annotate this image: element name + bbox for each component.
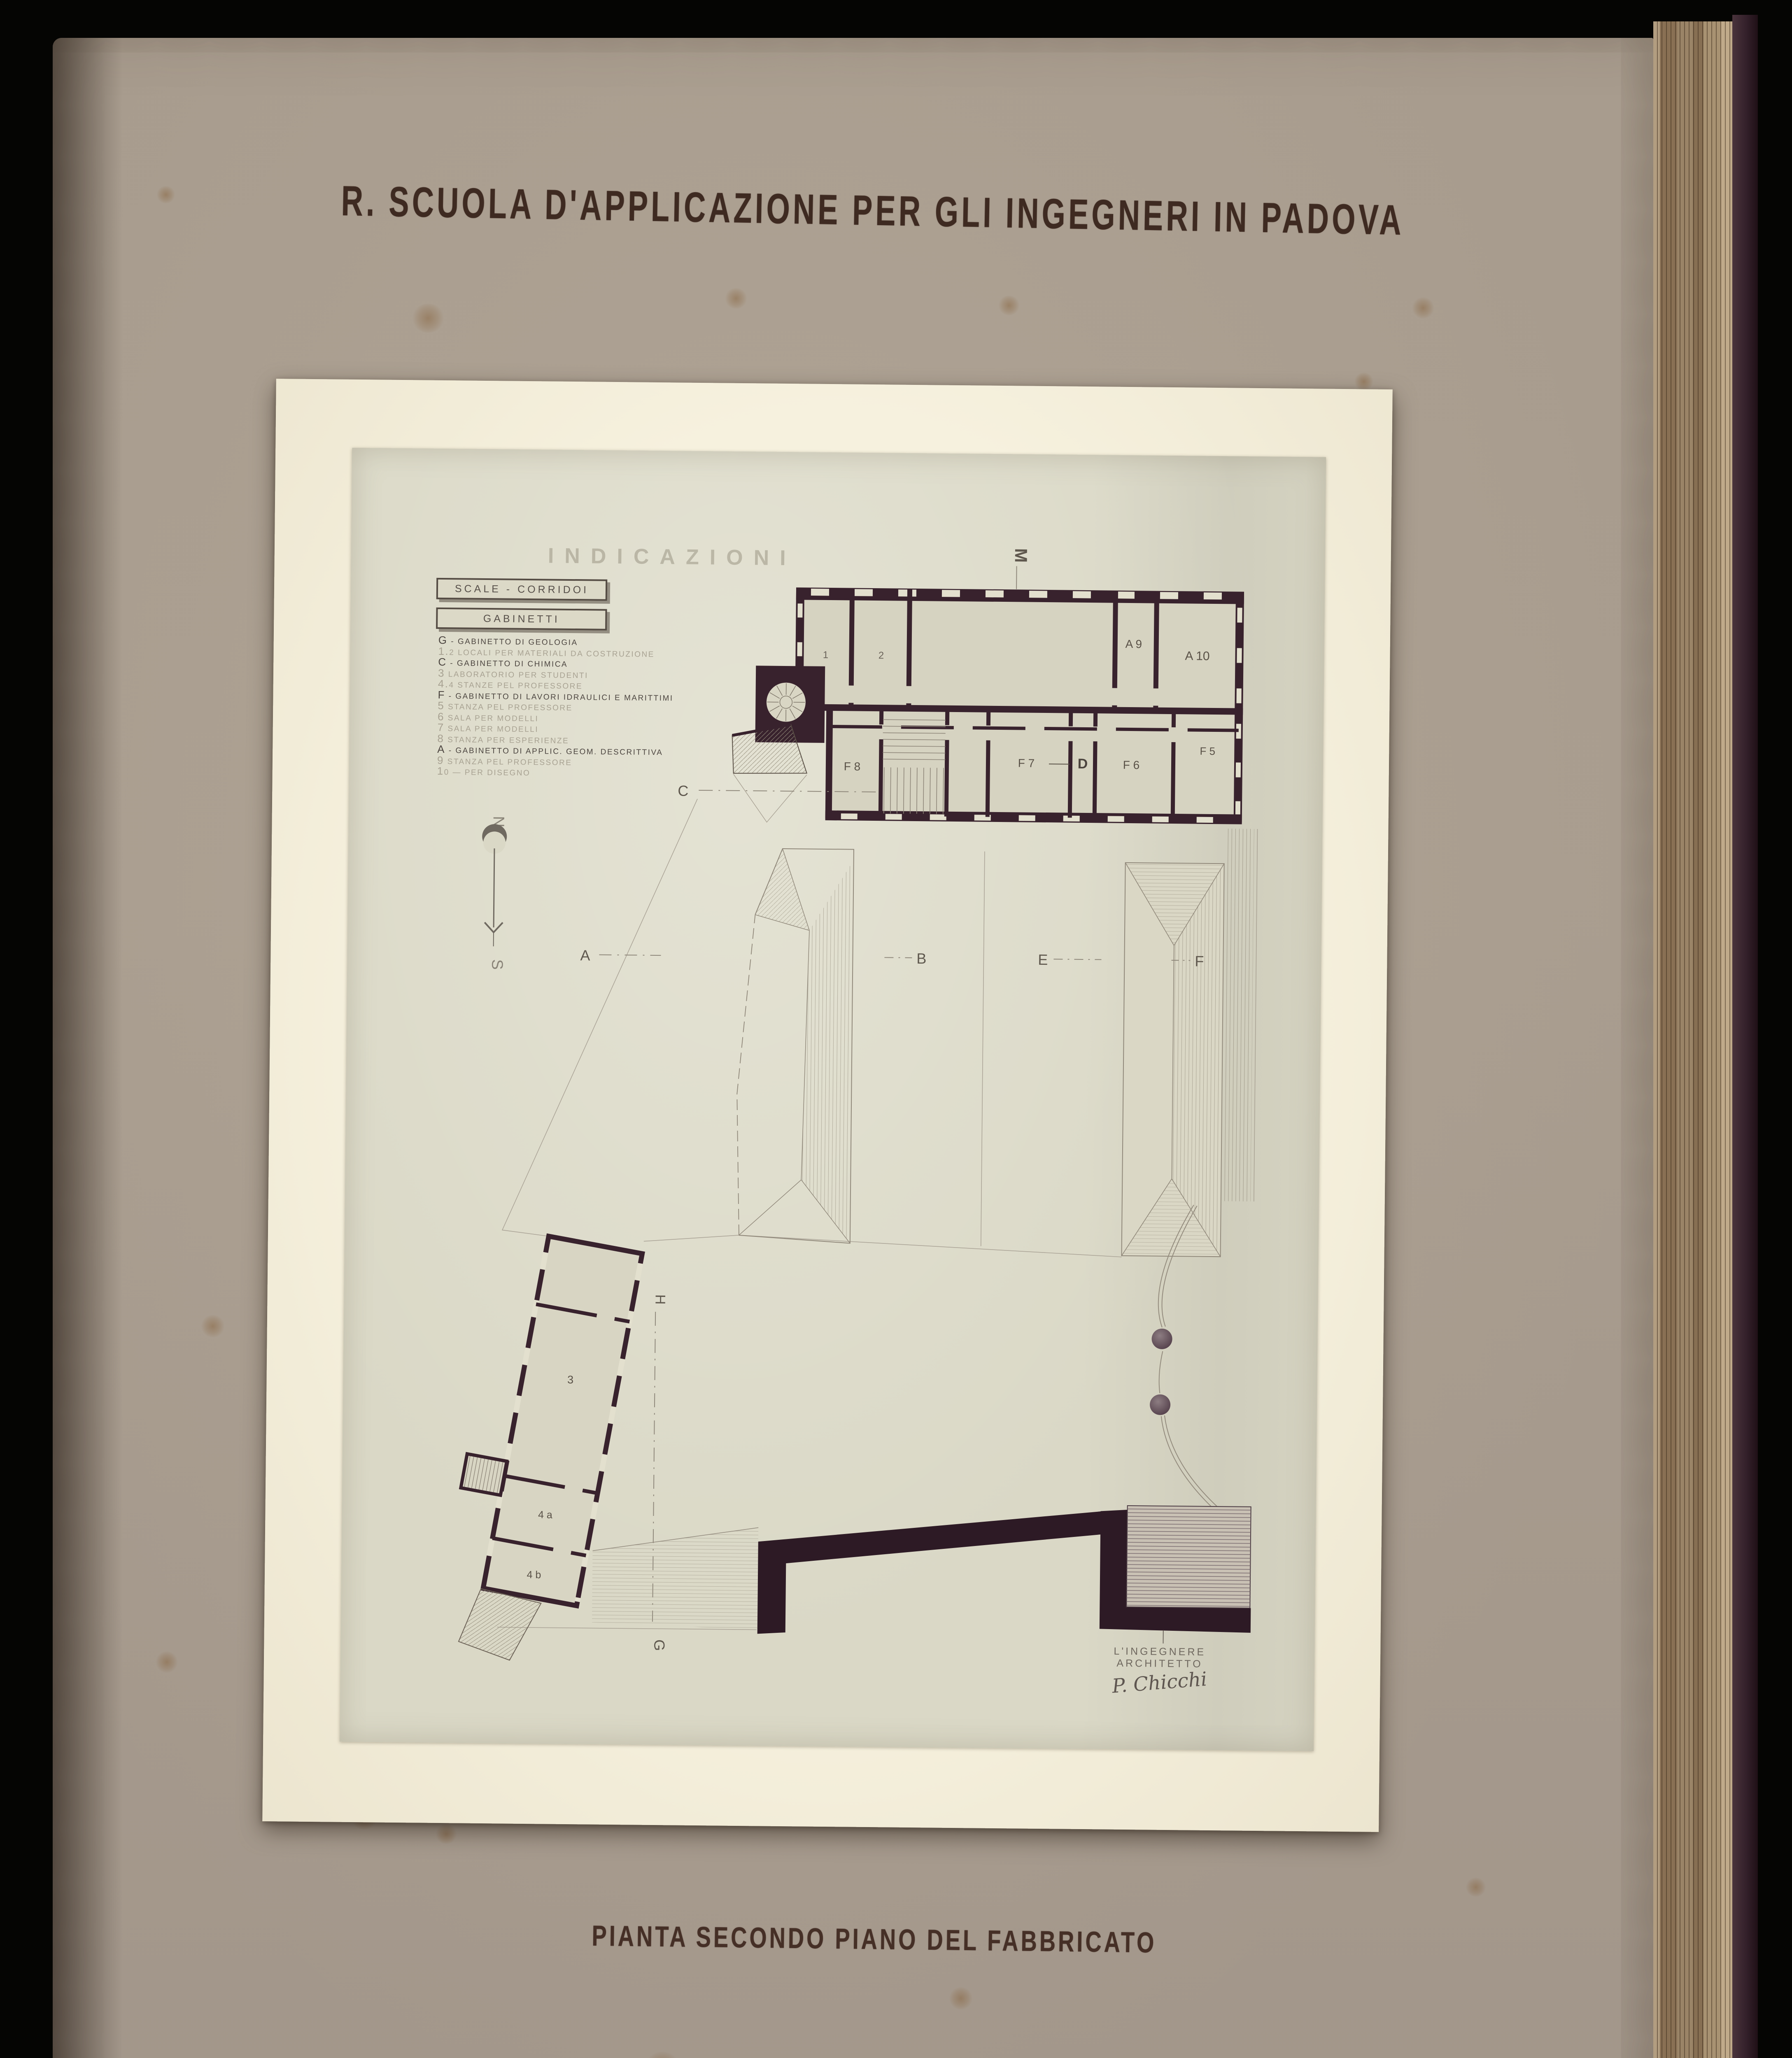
foxing-spot <box>998 296 1020 315</box>
scan-background: R. SCUOLA D'APPLICAZIONE PER GLI INGEGNE… <box>0 0 1792 2058</box>
plan-heading: INDICAZIONI <box>532 543 812 571</box>
foxing-spot <box>1466 1878 1486 1897</box>
section-letter-row: A B E F <box>580 947 1204 970</box>
orientation-tick <box>1016 566 1017 589</box>
foxing-spot <box>156 186 175 203</box>
foxing-spot <box>1412 297 1434 319</box>
section-label-b: B <box>916 950 926 967</box>
room-label-4a: 4 a <box>538 1509 552 1520</box>
page-caption: PIANTA SECONDO PIANO DEL FABBRICATO <box>592 1919 1157 1959</box>
room-label-a9: A 9 <box>1125 638 1142 650</box>
east-boundary <box>1254 829 1258 1201</box>
east-building-roof <box>1122 828 1258 1257</box>
room-label-a10: A 10 <box>1185 649 1209 663</box>
credit-block: L'INGEGNERE ARCHITETTO P. Chicchi <box>1077 1645 1242 1695</box>
section-label-d: D <box>1078 756 1088 772</box>
legend-list: G - GABINETTO DI GEOLOGIA 1.2 LOCALI PER… <box>437 635 899 781</box>
compass-needle-icon: N S <box>481 816 507 970</box>
room-label-4b: 4 b <box>527 1569 541 1581</box>
binding-gutter-shadow <box>53 38 123 2058</box>
foxing-spot <box>1354 372 1373 391</box>
east-wall-band <box>1224 829 1254 1201</box>
section-label-a: A <box>580 947 590 964</box>
legend-box-gabinetti: GABINETTI <box>436 608 607 631</box>
room-label-f6: F 6 <box>1123 759 1140 771</box>
floor-plan-photograph: N S M <box>340 448 1326 1751</box>
room-label-f7: F 7 <box>1018 757 1035 769</box>
foxing-spot <box>949 1987 973 2009</box>
foxing-spot <box>725 288 748 309</box>
room-label-3: 3 <box>567 1374 573 1386</box>
room-label-f5: F 5 <box>1200 745 1215 757</box>
tree-dot <box>1151 1329 1172 1349</box>
section-label-f: F <box>1195 953 1204 970</box>
book-page-edges <box>1653 21 1732 2058</box>
south-light-terrace <box>592 1526 758 1630</box>
section-label-h: H <box>652 1294 668 1305</box>
orientation-letter-m: M <box>1011 548 1031 589</box>
tree-dot <box>1150 1395 1170 1415</box>
section-label-g: G <box>651 1639 668 1651</box>
south-hatched-roof <box>1126 1506 1251 1608</box>
foxing-spot <box>436 1824 457 1844</box>
foxing-spot <box>201 1315 225 1337</box>
section-label-e: E <box>1038 951 1048 968</box>
compass-south-label: S <box>488 959 506 970</box>
photo-mount-mat: N S M <box>262 379 1393 1832</box>
label-m: M <box>1011 548 1031 563</box>
wing-stair-annex <box>461 1454 507 1495</box>
legend-box-scale-corridoi: SCALE - CORRIDOI <box>436 578 607 601</box>
section-label-c: C <box>678 782 688 799</box>
central-roof <box>736 848 854 1243</box>
book-cover-edge <box>1732 15 1758 2058</box>
foxing-spot <box>156 1651 178 1673</box>
foxing-spot <box>412 304 445 333</box>
